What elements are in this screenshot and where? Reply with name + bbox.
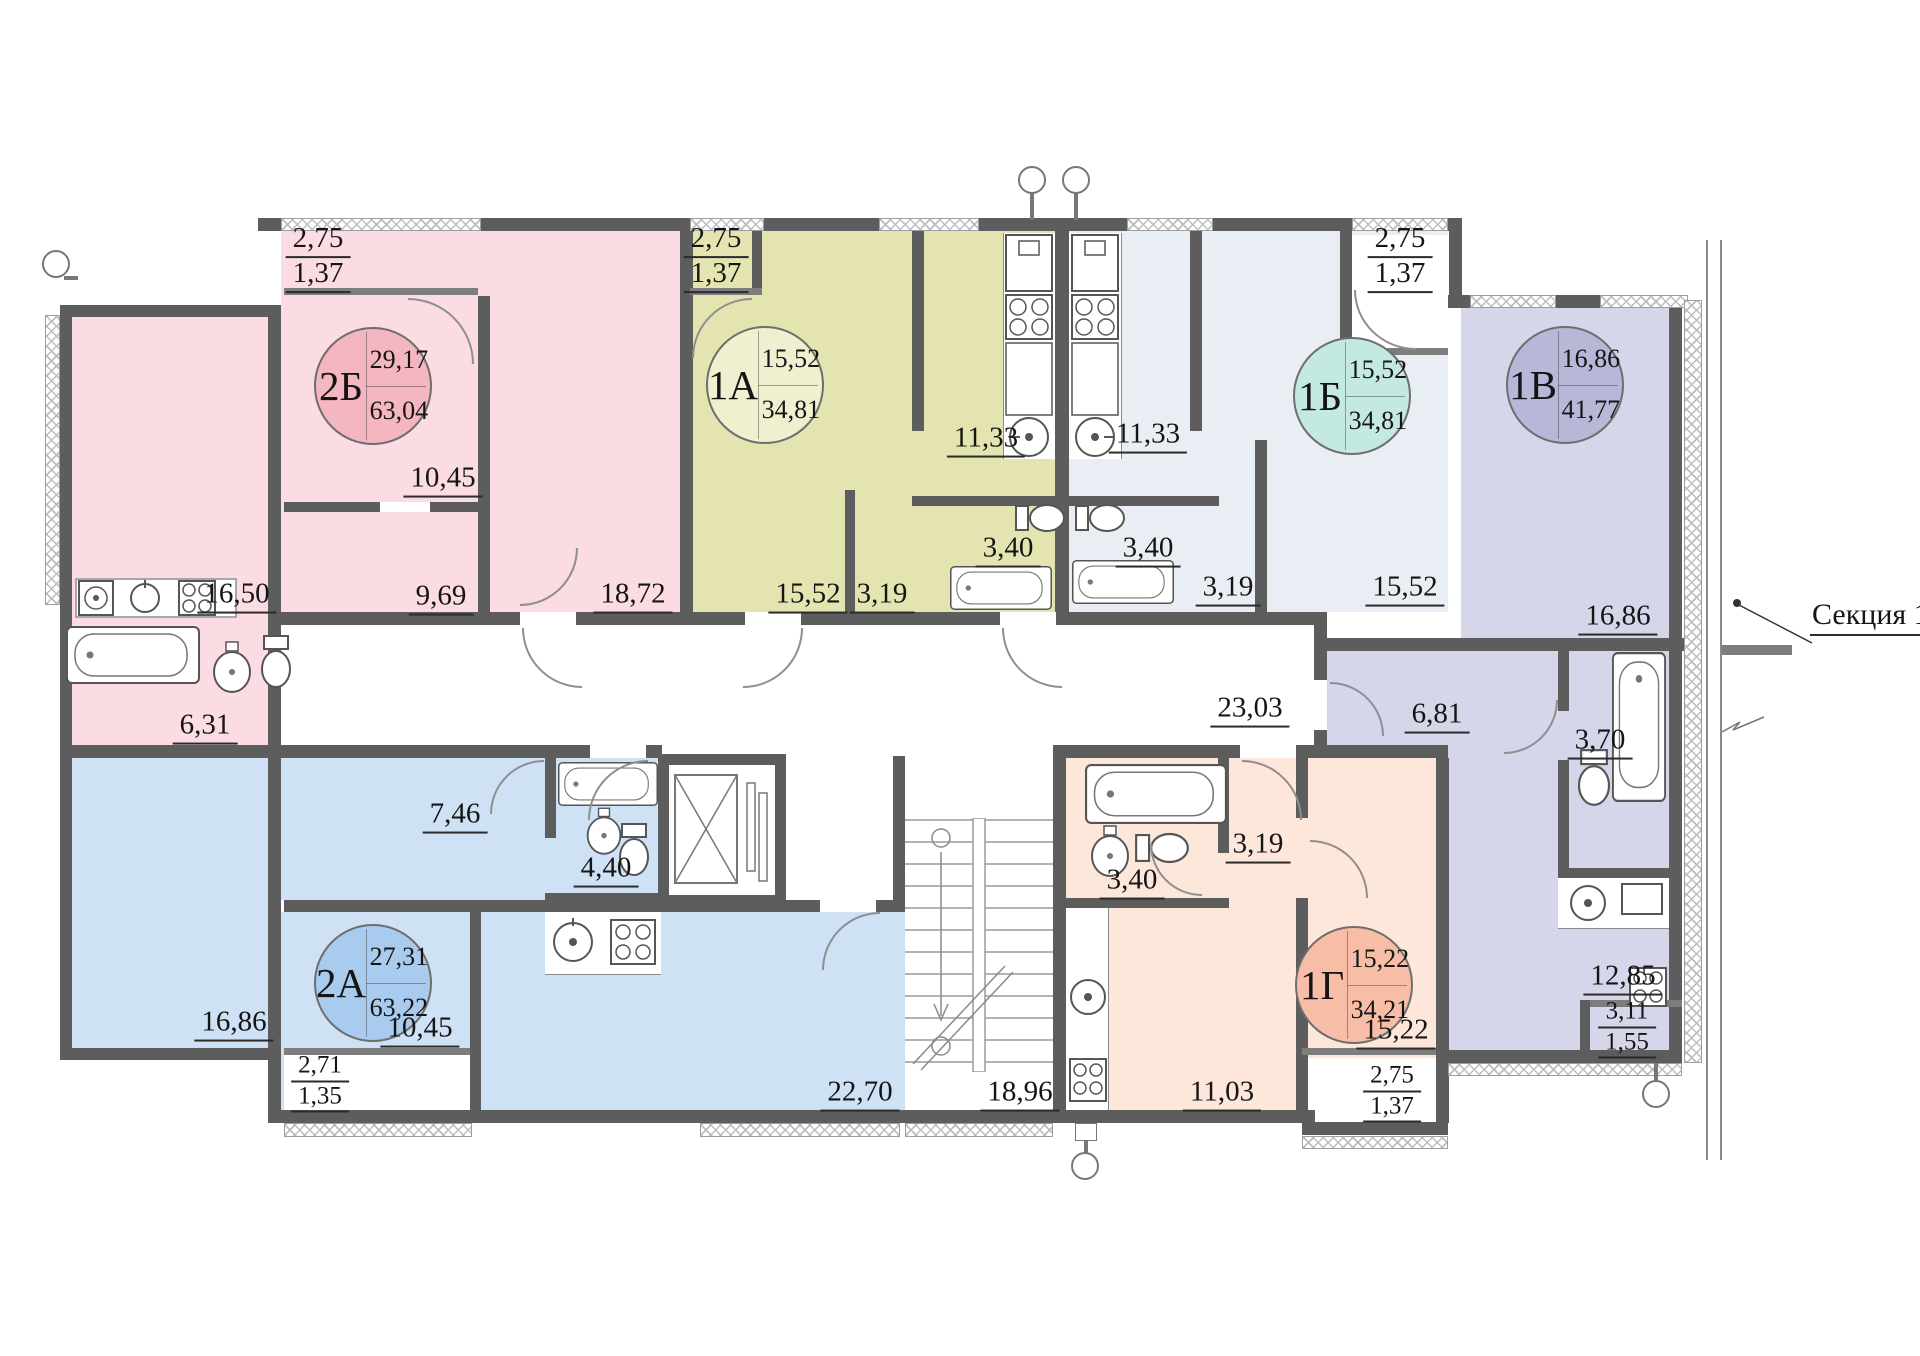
leader-line <box>1730 595 1814 647</box>
living-area-value: 15,22 <box>1351 944 1410 974</box>
apartment-code: 1Б <box>1295 372 1345 420</box>
area-1b-room: 15,52 <box>1365 572 1444 607</box>
elevator-shaft <box>658 754 786 906</box>
dim-value: 10,45 <box>380 1013 459 1048</box>
dim-value: 11,33 <box>947 423 1025 458</box>
section-label: Секция 17 <box>1810 598 1920 636</box>
dim-value: 1,37 <box>1363 1092 1421 1123</box>
exterior-hatch <box>905 1123 1053 1137</box>
apartment-code: 1Г <box>1297 961 1347 1009</box>
area-2a-bedroom1: 16,86 <box>194 1007 273 1042</box>
living-area-value: 15,52 <box>1349 355 1408 385</box>
dim-value: 2,75 <box>1363 1062 1421 1093</box>
wall <box>1302 745 1448 758</box>
living-area-value: 16,86 <box>1562 344 1621 374</box>
wall <box>1314 638 1688 651</box>
area-1v-kitchen: 12,85 <box>1583 961 1662 996</box>
exterior-hatch <box>1470 295 1556 308</box>
balcony-dims-2a: 2,71 1,35 <box>291 1052 349 1113</box>
dim-value: 15,22 <box>1356 1015 1435 1050</box>
area-1a-kitchen: 11,33 <box>947 423 1025 458</box>
dim-value: 2,71 <box>291 1052 349 1083</box>
dim-value: 16,86 <box>1578 601 1657 636</box>
area-2b-bedroom: 10,45 <box>403 463 482 498</box>
kitchen-icons-1v <box>1558 878 1669 928</box>
vent-stem <box>1654 1063 1658 1081</box>
wall <box>470 912 481 1110</box>
door-opening <box>1000 612 1056 625</box>
area-2a-hall: 7,46 <box>423 799 488 834</box>
wall <box>893 756 905 903</box>
area-2a-living: 22,70 <box>820 1077 899 1112</box>
dim-value: 3,19 <box>850 579 915 614</box>
dim-value: 3,70 <box>1568 725 1633 760</box>
area-1a-hall: 3,19 <box>850 579 915 614</box>
area-2b-hall: 9,69 <box>409 581 474 616</box>
dim-value: 2,75 <box>1368 223 1433 258</box>
wall <box>60 305 281 317</box>
expansion-joint <box>1684 300 1702 1063</box>
vent-symbol <box>42 250 70 278</box>
door-swing <box>1002 628 1062 688</box>
balcony-dims-1g: 2,75 1,37 <box>1363 1062 1421 1123</box>
exterior-hatch <box>1302 1136 1448 1149</box>
area-stairwell: 18,96 <box>980 1077 1059 1112</box>
area-1v-room: 16,86 <box>1578 601 1657 636</box>
area-1g-room: 15,22 <box>1356 1015 1435 1050</box>
exterior-hatch <box>1600 295 1688 308</box>
wall <box>60 745 662 758</box>
dim-value: 1,55 <box>1598 1028 1656 1059</box>
wall <box>752 231 762 295</box>
apartment-code: 1А <box>708 361 758 409</box>
wall <box>60 1048 281 1060</box>
bathtub-icon <box>1085 764 1227 824</box>
total-area-value: 34,81 <box>762 395 821 425</box>
area-1b-hall: 3,19 <box>1196 572 1261 607</box>
area-2b-bathroom: 6,31 <box>173 710 238 745</box>
bathtub-icon <box>66 626 200 684</box>
dim-value: 15,52 <box>1365 572 1444 607</box>
vent-symbol <box>1642 1080 1670 1108</box>
dim-value: 3,11 <box>1598 998 1656 1029</box>
dim-value: 3,40 <box>1116 533 1181 568</box>
door-opening <box>820 900 876 912</box>
area-corridor: 23,03 <box>1210 693 1289 728</box>
wall <box>545 758 556 838</box>
wall <box>478 296 490 612</box>
balcony-dims-2b: 2,75 1,37 <box>286 223 351 293</box>
dim-value: 12,85 <box>1583 961 1662 996</box>
apartment-code: 2Б <box>316 362 366 410</box>
vent-stem <box>1030 192 1034 220</box>
vent-symbol <box>1062 166 1090 194</box>
elevator-car-icon <box>669 765 775 895</box>
vent-box <box>1075 1123 1097 1141</box>
dim-value: 18,72 <box>593 579 672 614</box>
kitchen-icons-1g <box>1068 975 1108 1105</box>
area-2a-bedroom2: 10,45 <box>380 1013 459 1048</box>
dim-value: 18,96 <box>980 1077 1059 1112</box>
dim-value: 10,45 <box>403 463 482 498</box>
floor-plan: 2Б 29,17 63,04 1А 15,52 34,81 1Б 15,52 3… <box>0 0 1920 1356</box>
wall-break-symbol <box>1722 712 1764 740</box>
door-opening <box>745 612 801 625</box>
wall <box>1302 1122 1448 1135</box>
door-opening <box>590 745 646 758</box>
dim-value: 7,46 <box>423 799 488 834</box>
area-1v-bathroom: 3,70 <box>1568 725 1633 760</box>
living-area-value: 27,31 <box>370 942 429 972</box>
wall <box>1558 760 1569 878</box>
dim-value: 1,37 <box>684 258 749 293</box>
wall <box>1580 1000 1590 1057</box>
door-swing <box>743 628 803 688</box>
vent-stem <box>64 276 78 280</box>
exterior-hatch <box>284 1123 472 1137</box>
bathtub-icon <box>950 566 1052 610</box>
exterior-hatch <box>1448 1063 1682 1076</box>
area-1b-kitchen: 11,33 <box>1109 419 1187 454</box>
area-2a-bathroom: 4,40 <box>574 853 639 888</box>
door-opening <box>380 502 430 512</box>
balcony-dims-1a: 2,75 1,37 <box>684 223 749 293</box>
apartment-badge-1b: 1Б 15,52 34,81 <box>1293 337 1411 455</box>
kitchen-icons-2a <box>545 912 661 974</box>
dim-value: 3,19 <box>1226 829 1291 864</box>
apartment-badge-2b: 2Б 29,17 63,04 <box>314 327 432 445</box>
apartment-code: 1В <box>1508 361 1558 409</box>
dim-value: 1,37 <box>1368 258 1433 293</box>
wall <box>1190 231 1202 431</box>
area-1a-bathroom: 3,40 <box>976 533 1041 568</box>
total-area-value: 34,81 <box>1349 406 1408 436</box>
wall <box>284 900 905 912</box>
balcony-dims-1b: 2,75 1,37 <box>1368 223 1433 293</box>
wall <box>1055 231 1069 612</box>
wall <box>912 231 924 431</box>
wall <box>1669 295 1682 1063</box>
area-1v-hall: 6,81 <box>1405 699 1470 734</box>
exterior-hatch <box>700 1123 900 1137</box>
door-opening <box>520 612 576 625</box>
wall <box>1449 218 1462 308</box>
wall <box>268 305 281 1123</box>
living-area-value: 29,17 <box>370 345 429 375</box>
dim-value: 3,40 <box>976 533 1041 568</box>
dim-value: 6,31 <box>173 710 238 745</box>
area-2b-living: 18,72 <box>593 579 672 614</box>
vent-symbol <box>1018 166 1046 194</box>
dim-value: 1,37 <box>286 258 351 293</box>
dim-value: 11,33 <box>1109 419 1187 454</box>
dim-value: 9,69 <box>409 581 474 616</box>
door-opening <box>1314 680 1327 730</box>
sink-icon <box>210 640 254 694</box>
apartment-badge-1v: 1В 16,86 41,77 <box>1506 326 1624 444</box>
dim-value: 22,70 <box>820 1077 899 1112</box>
dim-value: 2,75 <box>684 223 749 258</box>
dim-value: 6,81 <box>1405 699 1470 734</box>
living-area-value: 15,52 <box>762 344 821 374</box>
door-swing <box>522 628 582 688</box>
area-2b-kitchen: 16,50 <box>197 579 276 614</box>
wall <box>1053 758 1066 1110</box>
door-opening <box>1240 745 1296 758</box>
dim-value: 3,19 <box>1196 572 1261 607</box>
wall <box>1065 898 1229 908</box>
apartment-2a-left-room <box>72 758 268 1048</box>
dim-value: 11,03 <box>1183 1077 1261 1112</box>
area-1b-bathroom: 3,40 <box>1116 533 1181 568</box>
dim-value: 1,35 <box>291 1082 349 1113</box>
area-1g-hall: 3,19 <box>1226 829 1291 864</box>
wall <box>1558 868 1669 878</box>
area-1g-kitchen: 11,03 <box>1183 1077 1261 1112</box>
vent-stem <box>1074 192 1078 220</box>
total-area-value: 63,04 <box>370 396 429 426</box>
dim-value: 16,86 <box>194 1007 273 1042</box>
section-17-wall <box>1706 240 1722 1160</box>
dim-value: 23,03 <box>1210 693 1289 728</box>
dim-value: 3,40 <box>1100 865 1165 900</box>
wall <box>268 1110 1315 1123</box>
apartment-code: 2А <box>316 959 366 1007</box>
dim-value: 15,52 <box>768 579 847 614</box>
exterior-hatch <box>1127 218 1213 231</box>
exterior-hatch <box>45 315 60 605</box>
stairs <box>905 818 1053 1072</box>
dim-value: 16,50 <box>197 579 276 614</box>
total-area-value: 41,77 <box>1562 395 1621 425</box>
balcony-dims-1v: 3,11 1,55 <box>1598 998 1656 1059</box>
dim-value: 2,75 <box>286 223 351 258</box>
dim-value: 4,40 <box>574 853 639 888</box>
toilet-icon <box>256 634 296 690</box>
area-1g-bathroom: 3,40 <box>1100 865 1165 900</box>
wall <box>1558 651 1569 711</box>
vent-symbol <box>1071 1152 1099 1180</box>
apartment-badge-1a: 1А 15,52 34,81 <box>706 326 824 444</box>
area-1a-room: 15,52 <box>768 579 847 614</box>
exterior-hatch <box>879 218 979 231</box>
